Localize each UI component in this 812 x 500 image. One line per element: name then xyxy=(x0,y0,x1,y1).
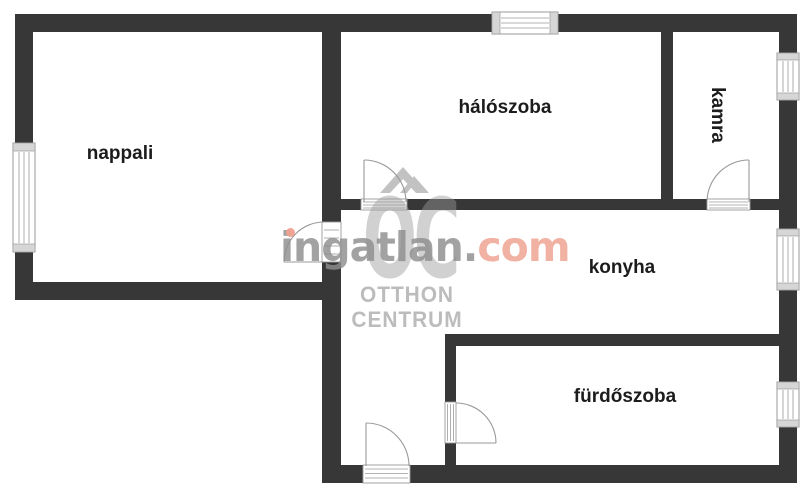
wall-bathroom-left-b xyxy=(445,443,456,465)
room-label-kamra: kamra xyxy=(706,87,728,143)
wall-bathroom-left-a xyxy=(445,334,456,402)
walls xyxy=(15,14,797,483)
sill-bedroom-door xyxy=(361,199,407,210)
wall-top xyxy=(15,14,797,32)
sill-entrance-door xyxy=(363,465,410,483)
door-living xyxy=(284,222,324,262)
window-pantry-right xyxy=(777,53,799,100)
wall-mid-vertical-upper xyxy=(322,14,341,222)
wall-pantry-bottom xyxy=(750,199,779,210)
door-bathroom xyxy=(456,403,496,443)
wall-nappali-bottom xyxy=(15,282,341,300)
room-label-furdoszoba: fürdőszoba xyxy=(574,386,676,408)
wall-bedroom-bottom-a xyxy=(341,199,361,210)
sill-pantry-door xyxy=(707,199,750,210)
wall-pantry-left xyxy=(661,32,673,199)
sill-bathroom-door xyxy=(445,402,456,443)
room-label-nappali: nappali xyxy=(87,143,154,165)
window-kitchen-right xyxy=(777,229,799,290)
floorplan-canvas: OC OTTHON CENTRUM ingatlan.com nappali h… xyxy=(0,0,812,500)
wall-bedroom-bottom-b xyxy=(407,199,707,210)
sill-living-door xyxy=(322,222,341,262)
wall-mid-vertical-lower xyxy=(322,262,341,483)
room-label-haloszoba: hálószoba xyxy=(459,97,552,119)
door-entrance xyxy=(366,423,409,466)
door-pantry xyxy=(707,160,749,202)
window-bathroom-right xyxy=(777,382,799,427)
window-bedroom-top xyxy=(492,12,558,34)
floorplan-graphic xyxy=(0,0,812,500)
window-living-left xyxy=(13,143,35,252)
wall-bathroom-top xyxy=(445,334,779,346)
room-label-konyha: konyha xyxy=(589,257,656,279)
